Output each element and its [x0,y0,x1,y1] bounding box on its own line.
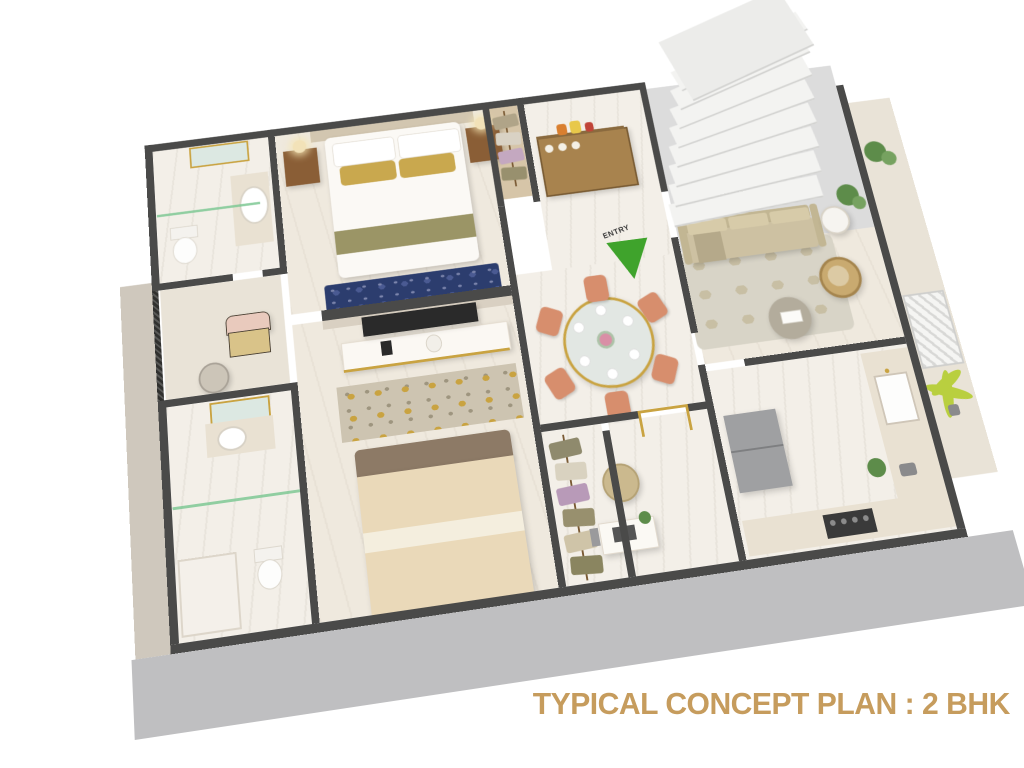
apartment-3d-plan: ENTRY [145,58,967,654]
console-decor [380,340,392,356]
dining-chair [583,274,610,303]
hanging-clothes [570,555,604,575]
hanging-clothes [562,508,595,527]
plan-title: TYPICAL CONCEPT PLAN : 2 BHK [533,686,1010,722]
floor-plan-render: ENTRY [0,0,1024,768]
nightstand-left [283,148,320,187]
hanging-clothes [495,132,521,146]
figurine [556,124,568,136]
entry-arrow [606,238,655,282]
figurine [584,122,594,132]
hanging-clothes [555,462,588,481]
figurine [569,120,582,134]
hanging-clothes [501,166,528,180]
toaster [898,462,918,477]
shower-tray [177,552,242,638]
